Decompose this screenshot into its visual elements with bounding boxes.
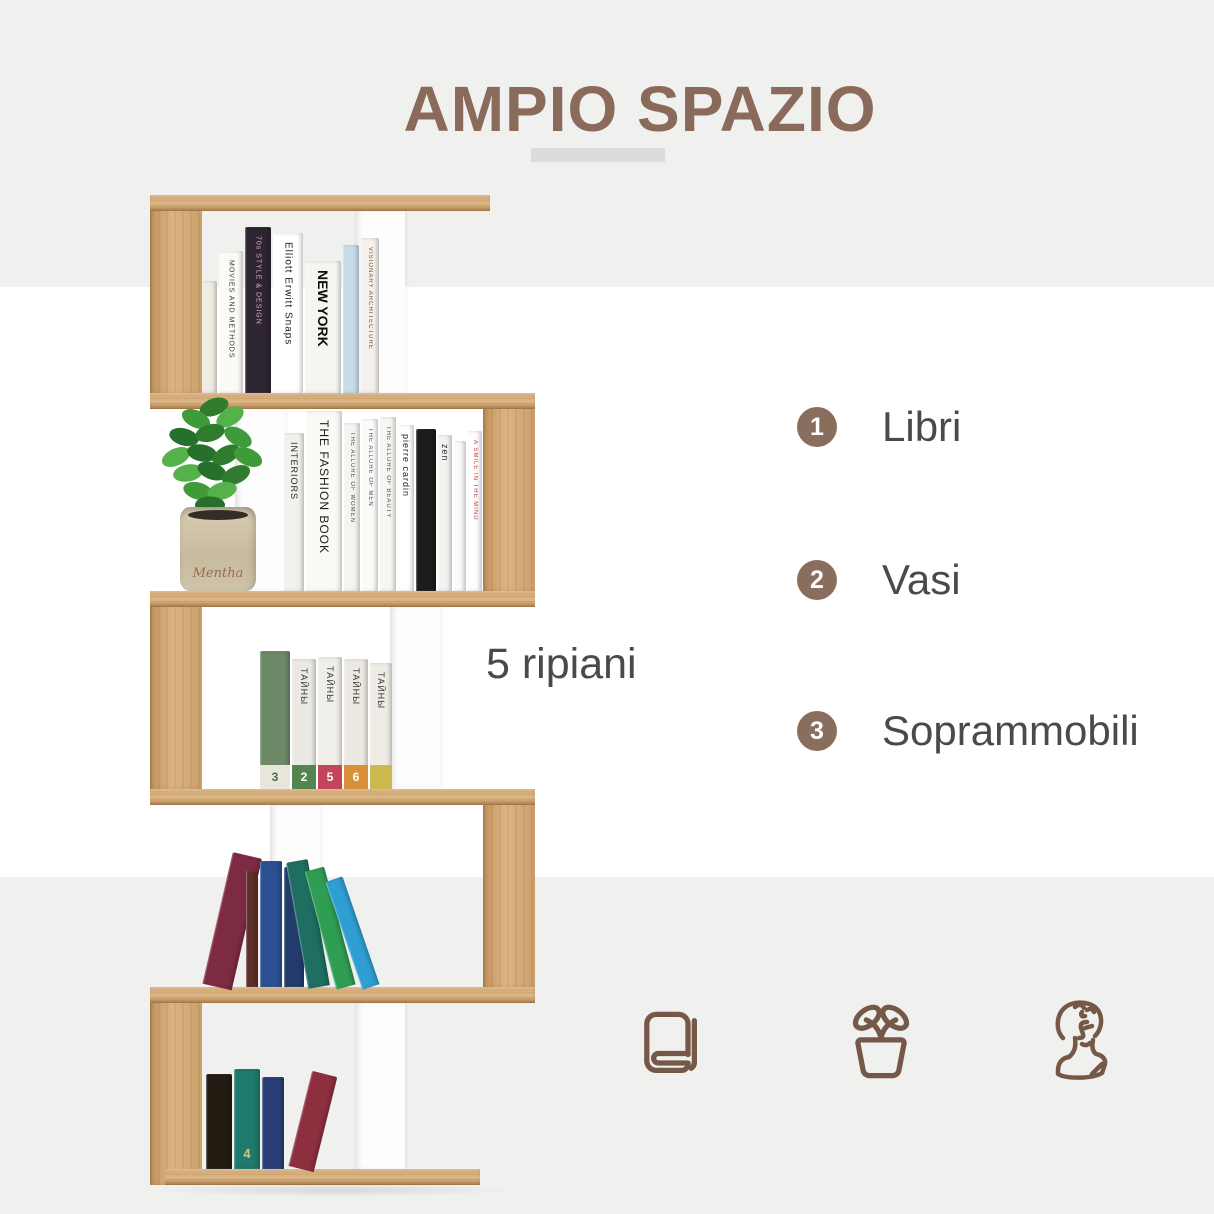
bust-icon xyxy=(1048,998,1114,1090)
side-panel xyxy=(150,591,202,789)
book-spine: zen xyxy=(438,435,452,591)
book-spine: THE ALLURE OF WOMEN xyxy=(344,423,360,591)
book-spine xyxy=(206,1074,232,1169)
bookshelf-photo: MOVIES AND METHODS70s STYLE & DESIGNElli… xyxy=(150,195,535,1185)
shelf-board xyxy=(150,789,535,805)
book-spine: ТАЙНЫ6 xyxy=(344,659,368,789)
book-spine: THE ALLURE OF MEN xyxy=(362,419,378,591)
side-panel xyxy=(483,393,535,591)
shelf-count-caption: 5 ripiani xyxy=(486,640,637,689)
book-spine: 3 xyxy=(260,651,290,789)
book-spine-title: 70s STYLE & DESIGN xyxy=(255,236,262,368)
book-spine xyxy=(454,441,466,591)
feature-number-badge: 1 xyxy=(797,407,837,447)
pot-soil xyxy=(188,510,248,520)
feature-item: 1Libri xyxy=(797,403,961,451)
book-spine: A SMILE IN THE MIND xyxy=(468,431,482,591)
book-volume-number: 6 xyxy=(344,765,368,789)
book-spine: NEW YORK xyxy=(305,261,341,393)
feature-number-badge: 3 xyxy=(797,711,837,751)
book-spine-title: pierre cardin xyxy=(401,434,411,566)
book-spine: 4 xyxy=(234,1069,260,1169)
book-spine xyxy=(288,1071,337,1172)
feature-label: Vasi xyxy=(882,556,961,604)
book-spine-title: zen xyxy=(440,444,450,566)
book-spine: MOVIES AND METHODS xyxy=(219,251,243,393)
book-spine: Elliott Erwitt Snaps xyxy=(273,233,303,393)
book-spine-title: ТАЙНЫ xyxy=(299,668,309,764)
plant-pot: Mentha xyxy=(180,507,256,591)
pot-label: Mentha xyxy=(180,566,256,581)
book-spine-title: Elliott Erwitt Snaps xyxy=(283,242,294,368)
book-spine-title: NEW YORK xyxy=(315,270,331,368)
book-spine-title: ТАЙНЫ xyxy=(325,666,335,764)
book-spine: ТАЙНЫ5 xyxy=(318,657,342,789)
book-volume-number: 3 xyxy=(260,765,290,789)
shelf-board xyxy=(150,987,535,1003)
book-spine xyxy=(416,429,436,591)
book-spine-title: ТАЙНЫ xyxy=(351,668,361,764)
feature-label: Libri xyxy=(882,403,961,451)
plant-foliage xyxy=(156,391,272,523)
page-title: AMPIO SPAZIO xyxy=(403,72,876,146)
feature-number-badge: 2 xyxy=(797,560,837,600)
plant-pot-icon xyxy=(843,1002,919,1084)
book-spine xyxy=(202,281,217,393)
shelf-board xyxy=(150,195,490,211)
side-panel xyxy=(150,987,202,1185)
feature-item: 2Vasi xyxy=(797,556,961,604)
side-panel xyxy=(150,195,202,393)
book-volume-number: 4 xyxy=(234,1146,260,1161)
book-spine: THE ALLURE OF BEAUTY xyxy=(380,417,396,591)
book-spine: pierre cardin xyxy=(398,425,414,591)
book-spine-title: THE ALLURE OF BEAUTY xyxy=(385,426,391,566)
book-icon xyxy=(634,1008,704,1082)
book-volume-number: 5 xyxy=(318,765,342,789)
book-spine-title: VISIONARY ARCHITECTURE xyxy=(367,247,373,368)
book-spine-title: THE ALLURE OF MEN xyxy=(367,428,373,566)
book-volume-number xyxy=(370,765,392,789)
book-spine xyxy=(260,861,282,987)
book-spine xyxy=(246,871,258,987)
side-panel xyxy=(483,789,535,987)
book-spine: ТАЙНЫ xyxy=(370,663,392,789)
book-spine-title: ТАЙНЫ xyxy=(376,672,386,764)
book-spine xyxy=(262,1077,284,1169)
book-spine xyxy=(343,245,359,393)
book-spine: VISIONARY ARCHITECTURE xyxy=(361,238,379,393)
shelf-board xyxy=(150,591,535,607)
book-spine: 70s STYLE & DESIGN xyxy=(245,227,271,393)
book-spine: INTERIORS xyxy=(284,433,304,591)
book-spine-title: MOVIES AND METHODS xyxy=(228,260,235,368)
book-spine: THE FASHION BOOK xyxy=(306,411,342,591)
book-spine-title: A SMILE IN THE MIND xyxy=(472,440,478,566)
book-spine: ТАЙНЫ2 xyxy=(292,659,316,789)
divider-panel xyxy=(355,1003,405,1169)
book-volume-number: 2 xyxy=(292,765,316,789)
book-spine-title: THE ALLURE OF WOMEN xyxy=(349,432,355,566)
title-underline xyxy=(531,148,665,162)
floor-shadow xyxy=(150,1183,520,1197)
book-spine-title: INTERIORS xyxy=(289,442,299,566)
feature-label: Soprammobili xyxy=(882,707,1139,755)
book-spine-title: THE FASHION BOOK xyxy=(317,420,331,566)
feature-item: 3Soprammobili xyxy=(797,707,1139,755)
divider-panel xyxy=(390,607,440,789)
